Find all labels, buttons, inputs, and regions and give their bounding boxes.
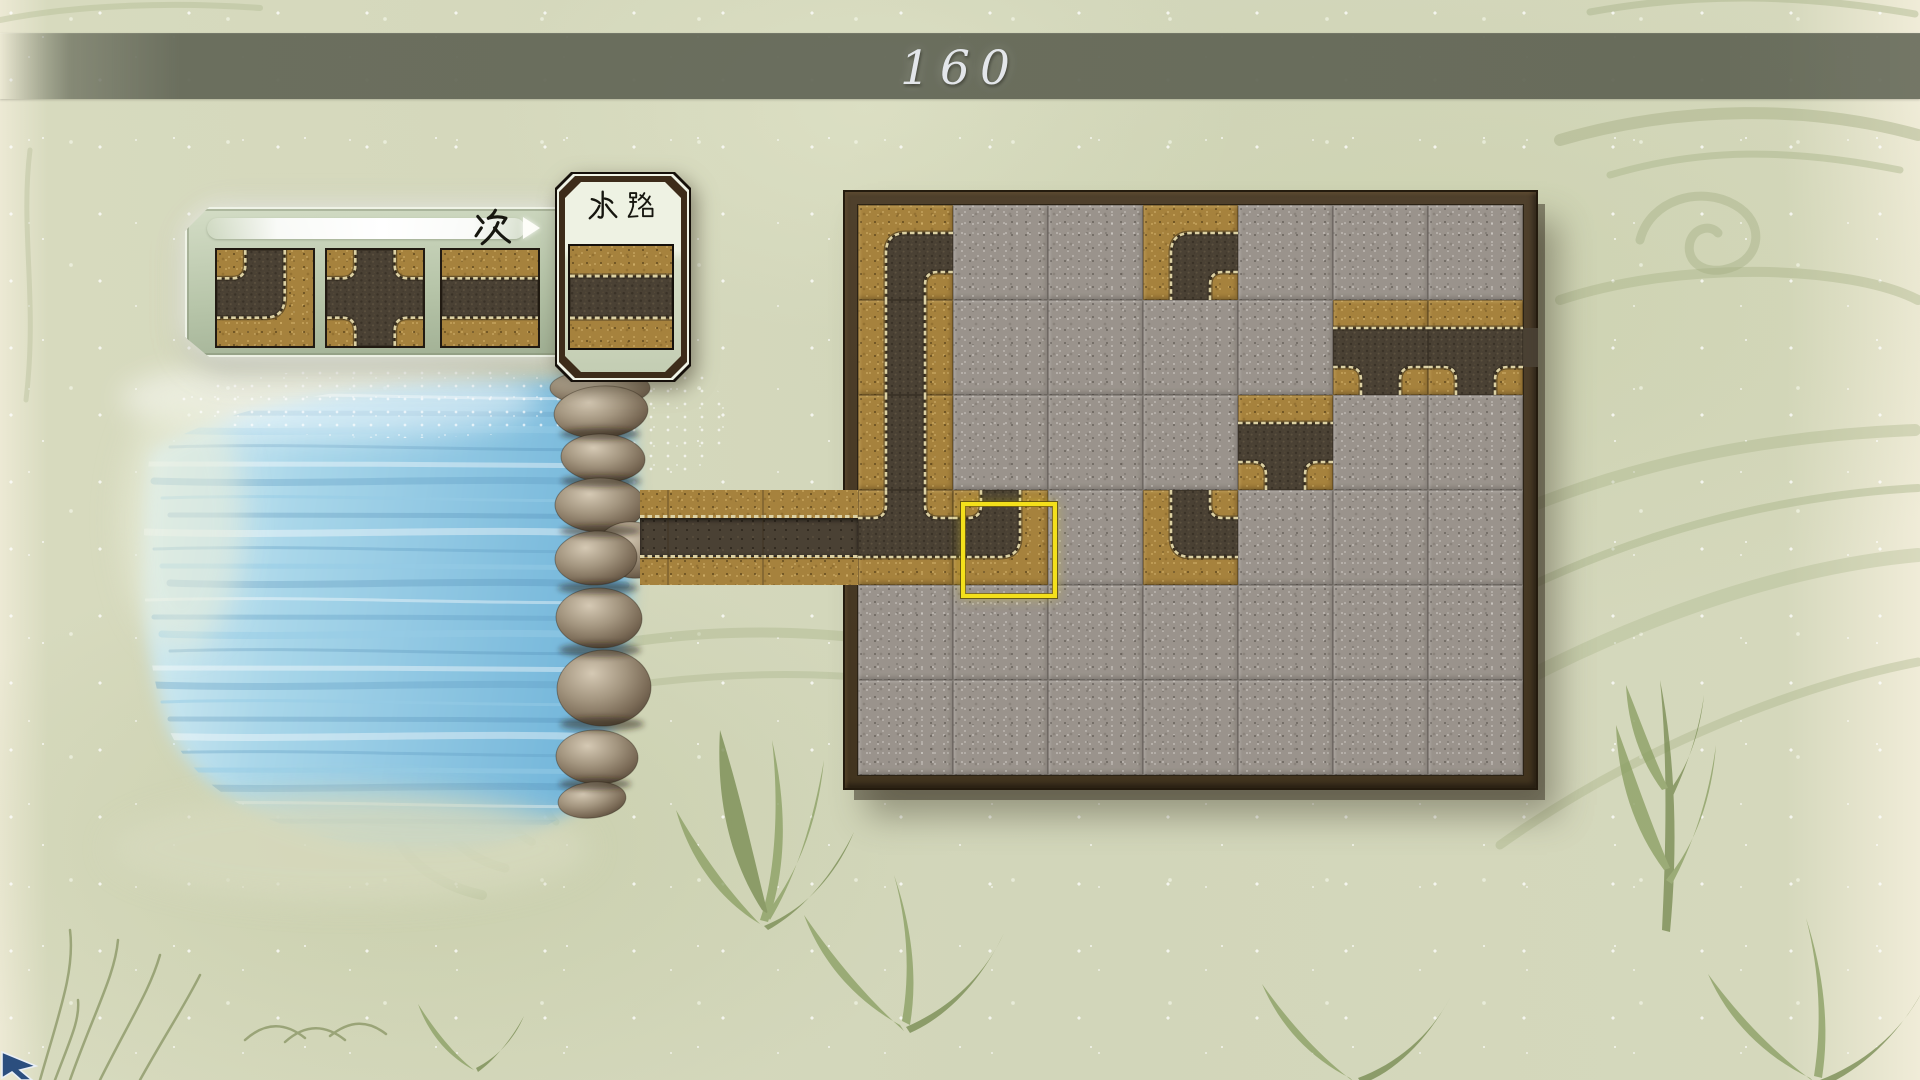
stock-panel: 水路	[555, 172, 691, 382]
stone-wall	[0, 0, 1920, 1080]
next-piece-1	[217, 250, 313, 346]
arrow-right-icon	[523, 217, 540, 239]
feeder-channel	[640, 490, 858, 585]
next-piece-2	[327, 250, 423, 346]
next-panel: 次	[185, 207, 562, 357]
next-kanji-glyph	[469, 204, 513, 250]
stock-piece	[570, 246, 672, 348]
counter: 160	[0, 41, 1920, 96]
game-screen: 次 水路	[0, 0, 1920, 1080]
road-kanji-glyph	[626, 189, 660, 223]
water-kanji-glyph	[585, 189, 619, 223]
next-piece-3	[442, 250, 538, 346]
pointer-icon[interactable]	[0, 1046, 48, 1080]
selection-cursor[interactable]	[961, 502, 1057, 598]
